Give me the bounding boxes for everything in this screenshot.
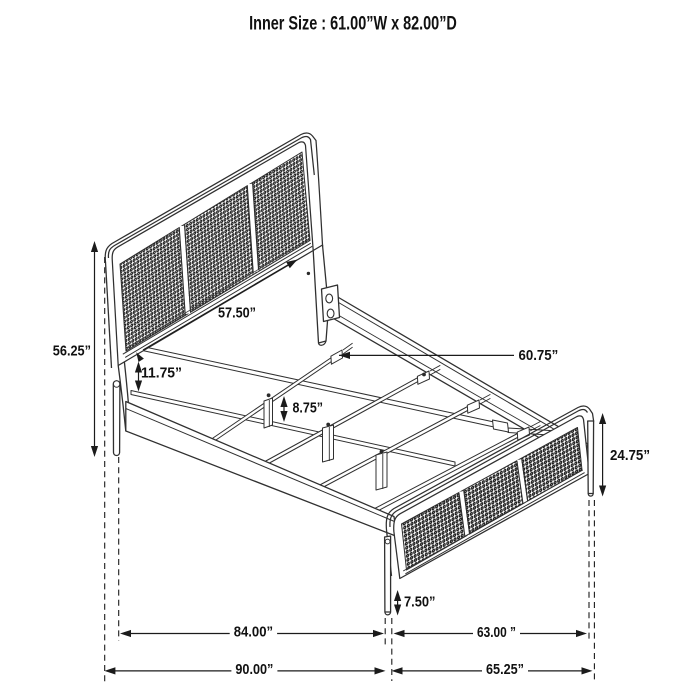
svg-text:60.75”: 60.75” bbox=[519, 348, 559, 364]
svg-text:8.75”: 8.75” bbox=[293, 401, 324, 417]
svg-text:90.00”: 90.00” bbox=[235, 662, 273, 678]
svg-text:84.00”: 84.00” bbox=[234, 625, 273, 641]
svg-text:63.00 ”: 63.00 ” bbox=[477, 625, 516, 641]
svg-text:65.25”: 65.25” bbox=[486, 662, 524, 678]
svg-text:11.75”: 11.75” bbox=[141, 365, 182, 381]
svg-text:57.50”: 57.50” bbox=[218, 306, 256, 322]
svg-text:24.75”: 24.75” bbox=[610, 448, 650, 464]
svg-text:7.50”: 7.50” bbox=[404, 595, 436, 611]
svg-text:Inner Size : 61.00”W x 82.00”D: Inner Size : 61.00”W x 82.00”D bbox=[249, 13, 457, 35]
svg-text:56.25”: 56.25” bbox=[53, 343, 91, 359]
